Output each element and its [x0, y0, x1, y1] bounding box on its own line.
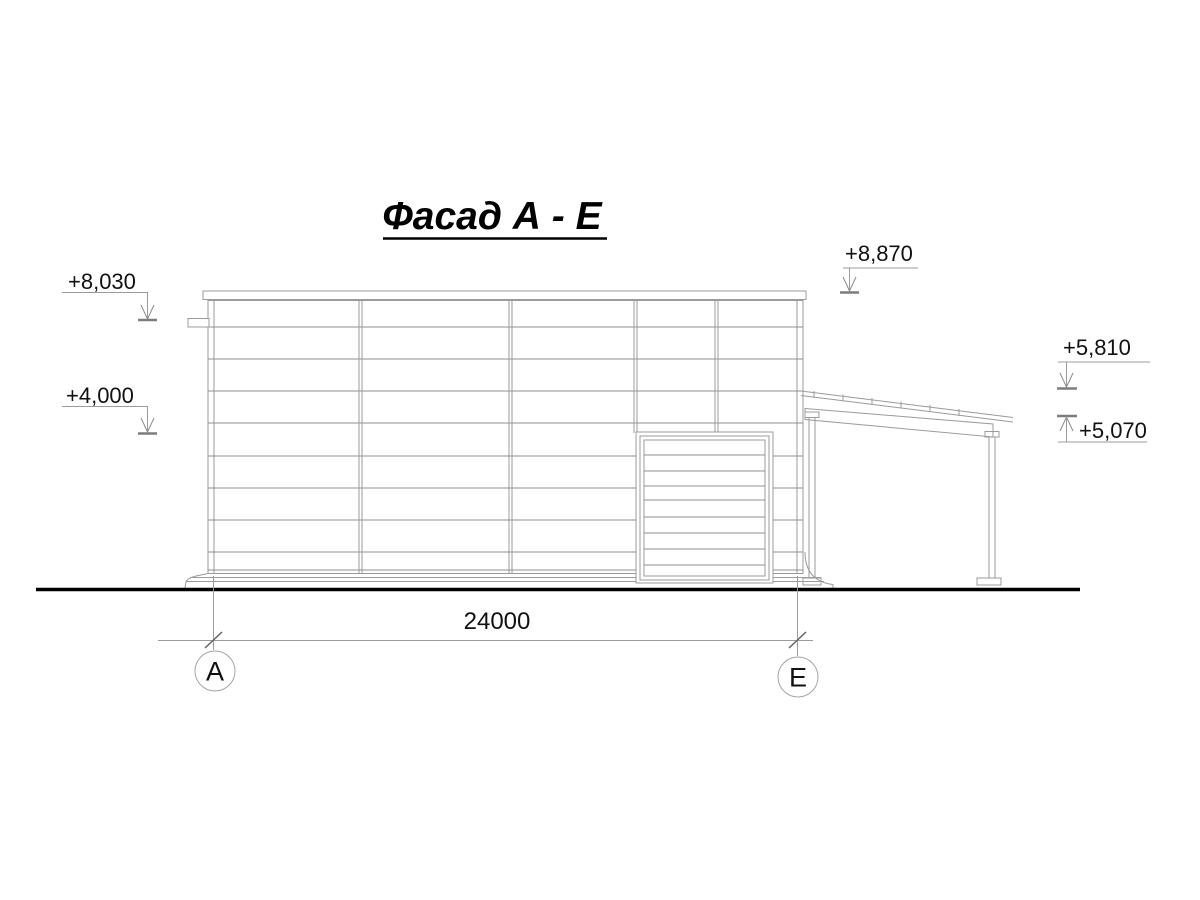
elevation-mark-8030: +8,030	[62, 269, 157, 320]
elevation-label: +8,030	[68, 269, 136, 294]
drawing-sheet: +8,030 +4,000 +8,870 +5,810 +5,070	[0, 0, 1200, 900]
title-text: Фасад А - Е	[382, 195, 602, 238]
elevation-label: +8,870	[845, 241, 913, 266]
elevation-label: +5,070	[1079, 418, 1147, 443]
canopy-fascia-beam	[805, 409, 993, 438]
elevation-label: +5,810	[1063, 335, 1131, 360]
elevation-mark-5810: +5,810	[1057, 335, 1150, 389]
drawing-title: Фасад А - Е	[382, 195, 607, 239]
dimension-value: 24000	[464, 608, 531, 635]
elevation-mark-4000: +4,000	[62, 383, 157, 434]
elevation-mark-5070: +5,070	[1057, 416, 1147, 443]
left-wall-console	[188, 319, 209, 328]
parapet-coping	[203, 291, 806, 300]
canopy	[801, 391, 1013, 588]
elevation-label: +4,000	[66, 383, 134, 408]
canopy-right-post	[977, 432, 1001, 586]
facade-elevation-drawing: +8,030 +4,000 +8,870 +5,810 +5,070	[0, 0, 1200, 900]
axis-bubble-a: А	[195, 651, 235, 691]
gate	[636, 432, 773, 583]
elevation-mark-8870: +8,870	[840, 241, 918, 293]
axis-letter: А	[206, 657, 224, 687]
axis-letter: Е	[789, 663, 807, 693]
axis-bubble-e: Е	[778, 657, 818, 697]
